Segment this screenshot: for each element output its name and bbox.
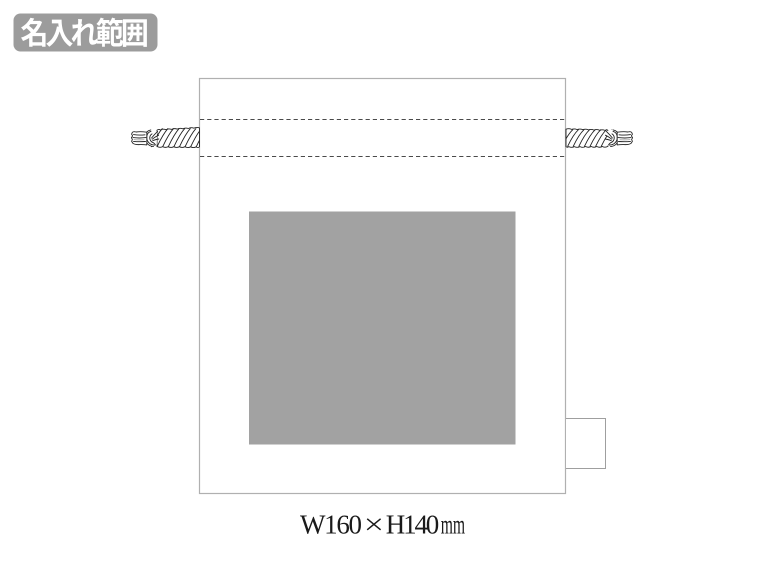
svg-text:W160: W160	[300, 510, 362, 540]
svg-text:H140: H140	[386, 510, 440, 540]
svg-text:mm: mm	[441, 510, 465, 540]
